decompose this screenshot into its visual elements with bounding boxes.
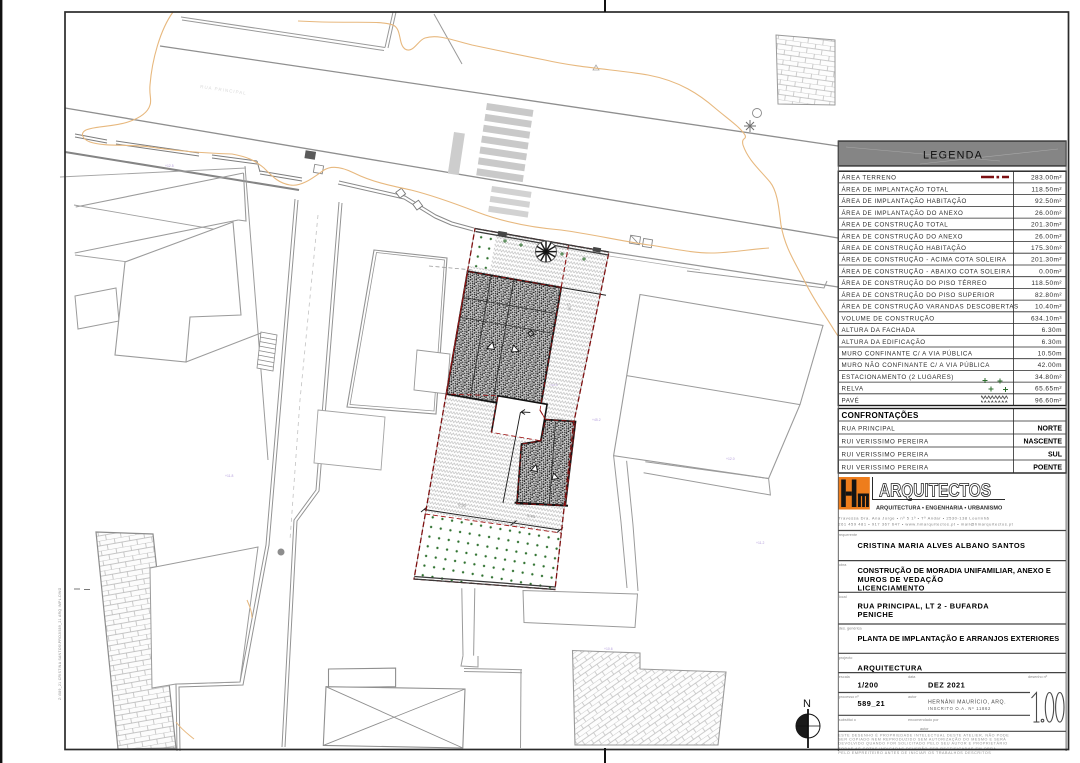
svg-text:+12.0: +12.0 bbox=[726, 457, 735, 461]
svg-text:6.30m: 6.30m bbox=[1042, 327, 1062, 334]
svg-text:118.50m²: 118.50m² bbox=[1031, 280, 1062, 287]
svg-text:ÁREA TERRENO: ÁREA TERRENO bbox=[842, 175, 897, 182]
svg-text:VOLUME DE CONSTRUÇÃO: VOLUME DE CONSTRUÇÃO bbox=[842, 315, 935, 322]
svg-text:projecto: projecto bbox=[839, 656, 853, 660]
svg-text:desenho nº: desenho nº bbox=[1028, 675, 1048, 679]
svg-text:6.30m: 6.30m bbox=[1042, 339, 1062, 346]
svg-text:CONFRONTAÇÕES: CONFRONTAÇÕES bbox=[842, 411, 919, 420]
svg-text:42.00m: 42.00m bbox=[1038, 362, 1062, 369]
svg-text:201.30m²: 201.30m² bbox=[1031, 222, 1062, 229]
svg-text:RUA PRINCIPAL: RUA PRINCIPAL bbox=[842, 426, 896, 433]
svg-text:ESTACIONAMENTO (2 LUGARES): ESTACIONAMENTO (2 LUGARES) bbox=[842, 374, 954, 381]
svg-text:ÁREA DE CONSTRUÇÃO DO PISO SUP: ÁREA DE CONSTRUÇÃO DO PISO SUPERIOR bbox=[842, 292, 995, 299]
svg-text:RUI VERISSIMO PEREIRA: RUI VERISSIMO PEREIRA bbox=[842, 465, 930, 472]
svg-text:autor: autor bbox=[920, 727, 929, 731]
svg-text:encomendado por: encomendado por bbox=[908, 718, 939, 722]
svg-text:CONSTRUÇÃO DE MORADIA UNIFAMIL: CONSTRUÇÃO DE MORADIA UNIFAMILIAR, ANEXO… bbox=[858, 566, 1051, 575]
svg-text:SUL: SUL bbox=[1048, 452, 1063, 459]
svg-text:+10.6: +10.6 bbox=[604, 647, 613, 651]
svg-text:NORTE: NORTE bbox=[1038, 426, 1063, 433]
svg-text:ÁREA DE IMPLANTAÇÃO TOTAL: ÁREA DE IMPLANTAÇÃO TOTAL bbox=[842, 186, 949, 193]
svg-text:+11.8: +11.8 bbox=[225, 474, 233, 478]
svg-text:+45.2: +45.2 bbox=[592, 418, 601, 422]
svg-text:ÁREA DE CONSTRUÇÃO DO PISO TÉR: ÁREA DE CONSTRUÇÃO DO PISO TÉRREO bbox=[842, 280, 988, 287]
svg-text:ALTURA DA FACHADA: ALTURA DA FACHADA bbox=[842, 327, 916, 334]
svg-text:NASCENTE: NASCENTE bbox=[1023, 439, 1062, 446]
svg-text:PLANTA DE IMPLANTAÇÃO E ARRANJ: PLANTA DE IMPLANTAÇÃO E ARRANJOS EXTERIO… bbox=[858, 634, 1060, 643]
svg-text:261 459 481 • 917 367 647 • ww: 261 459 481 • 917 367 647 • www.hmarquit… bbox=[838, 522, 1013, 527]
svg-text:589_21: 589_21 bbox=[858, 699, 886, 708]
svg-text:ÁREA DE CONSTRUÇÃO TOTAL: ÁREA DE CONSTRUÇÃO TOTAL bbox=[842, 222, 949, 229]
svg-text:ÁREA DE CONSTRUÇÃO VARANDAS DE: ÁREA DE CONSTRUÇÃO VARANDAS DESCOBERTAS bbox=[842, 304, 1019, 311]
svg-text:LEGENDA: LEGENDA bbox=[923, 150, 983, 162]
svg-text:HERNÂNI MAURÍCIO, ARQ.: HERNÂNI MAURÍCIO, ARQ. bbox=[928, 699, 1006, 706]
svg-text:ALTURA DA EDIFICAÇÃO: ALTURA DA EDIFICAÇÃO bbox=[842, 339, 926, 346]
svg-text:82.80m²: 82.80m² bbox=[1035, 292, 1062, 299]
svg-text:MURO NÃO CONFINANTE C/ A VIA P: MURO NÃO CONFINANTE C/ A VIA PÚBLICA bbox=[842, 362, 991, 369]
svg-text:ÁREA DE CONSTRUÇÃO HABITAÇÃO: ÁREA DE CONSTRUÇÃO HABITAÇÃO bbox=[842, 245, 967, 252]
svg-text:RELVA: RELVA bbox=[842, 386, 864, 393]
svg-text:requerente: requerente bbox=[839, 533, 857, 537]
svg-text:26.00m²: 26.00m² bbox=[1035, 210, 1062, 217]
svg-text:data: data bbox=[908, 675, 916, 679]
svg-text:ÁREA DE CONSTRUÇÃO - ABAIXO CO: ÁREA DE CONSTRUÇÃO - ABAIXO COTA SOLEIRA bbox=[842, 269, 1012, 276]
svg-text:ARQUITECTOS: ARQUITECTOS bbox=[879, 480, 991, 501]
svg-text:PAVÉ: PAVÉ bbox=[842, 397, 860, 404]
svg-text:0.00m²: 0.00m² bbox=[1039, 269, 1062, 276]
svg-text:Z:\589_21 CRISTINA SANTOS\PROJ: Z:\589_21 CRISTINA SANTOS\PROJ\589_21 AR… bbox=[58, 587, 62, 700]
svg-text:N: N bbox=[803, 698, 811, 710]
svg-text:634.10m³: 634.10m³ bbox=[1031, 315, 1062, 322]
svg-text:10.40m²: 10.40m² bbox=[1035, 304, 1062, 311]
svg-text:ÁREA DE IMPLANTAÇÃO DO ANEXO: ÁREA DE IMPLANTAÇÃO DO ANEXO bbox=[842, 210, 964, 217]
svg-text:substitui o: substitui o bbox=[839, 718, 856, 722]
svg-text:+12.5: +12.5 bbox=[165, 164, 174, 168]
svg-text:92.50m²: 92.50m² bbox=[1035, 198, 1062, 205]
svg-text:RUI VERISSIMO PEREIRA: RUI VERISSIMO PEREIRA bbox=[842, 439, 930, 446]
svg-text:PENICHE: PENICHE bbox=[858, 610, 894, 619]
svg-text:ÁREA DE IMPLANTAÇÃO HABITAÇÃO: ÁREA DE IMPLANTAÇÃO HABITAÇÃO bbox=[842, 198, 967, 205]
svg-text:DEZ 2021: DEZ 2021 bbox=[928, 681, 965, 690]
svg-text:175.30m²: 175.30m² bbox=[1031, 245, 1062, 252]
svg-text:INSCRITO O.A. Nº 11862: INSCRITO O.A. Nº 11862 bbox=[928, 706, 991, 711]
svg-text:MURO CONFINANTE C/ A VIA PÚBLI: MURO CONFINANTE C/ A VIA PÚBLICA bbox=[842, 351, 973, 358]
svg-text:283.00m²: 283.00m² bbox=[1031, 175, 1062, 182]
svg-text:local: local bbox=[839, 595, 847, 599]
svg-text:POENTE: POENTE bbox=[1033, 465, 1062, 472]
svg-text:34.80m²: 34.80m² bbox=[1035, 374, 1062, 381]
svg-text:LICENCIAMENTO: LICENCIAMENTO bbox=[858, 584, 925, 593]
svg-text:autor: autor bbox=[908, 695, 917, 699]
svg-text:ARQUITECTURA • ENGENHARIA • UR: ARQUITECTURA • ENGENHARIA • URBANISMO bbox=[876, 506, 1003, 512]
svg-text:processo nº: processo nº bbox=[839, 695, 860, 699]
svg-text:118.50m²: 118.50m² bbox=[1031, 186, 1062, 193]
svg-text:1/200: 1/200 bbox=[858, 681, 879, 690]
svg-text:PELO EMPREITEIRO ANTES DE INIC: PELO EMPREITEIRO ANTES DE INICIAR OS TRA… bbox=[838, 751, 991, 755]
svg-text:RUI VERISSIMO PEREIRA: RUI VERISSIMO PEREIRA bbox=[842, 452, 930, 459]
svg-text:CRISTINA MARIA ALVES ALBANO SA: CRISTINA MARIA ALVES ALBANO SANTOS bbox=[858, 541, 1026, 550]
svg-text:65.65m²: 65.65m² bbox=[1035, 386, 1062, 393]
svg-text:obra: obra bbox=[839, 563, 847, 567]
svg-text:escala: escala bbox=[839, 675, 851, 679]
svg-text:26.00m²: 26.00m² bbox=[1035, 233, 1062, 240]
svg-text:96.60m²: 96.60m² bbox=[1035, 397, 1062, 404]
svg-text:10.50m: 10.50m bbox=[1038, 351, 1062, 358]
svg-text:ÁREA DE CONSTRUÇÃO - ACIMA COT: ÁREA DE CONSTRUÇÃO - ACIMA COTA SOLEIRA bbox=[842, 257, 1007, 264]
svg-text:ARQUITECTURA: ARQUITECTURA bbox=[858, 664, 923, 673]
svg-text:ÁREA DE CONSTRUÇÃO DO ANEXO: ÁREA DE CONSTRUÇÃO DO ANEXO bbox=[842, 233, 963, 240]
svg-text:DEVOLVIDO QUANDO FOR SOLICITAD: DEVOLVIDO QUANDO FOR SOLICITADO PELO SEU… bbox=[838, 742, 1007, 746]
svg-text:des. genérica: des. genérica bbox=[839, 627, 863, 631]
svg-text:+11.2: +11.2 bbox=[756, 541, 764, 545]
svg-text:201.30m²: 201.30m² bbox=[1031, 257, 1062, 264]
svg-text:Travessa Dra. Ana Jorge • nº 5: Travessa Dra. Ana Jorge • nº 5 1º • Tº A… bbox=[838, 516, 989, 521]
